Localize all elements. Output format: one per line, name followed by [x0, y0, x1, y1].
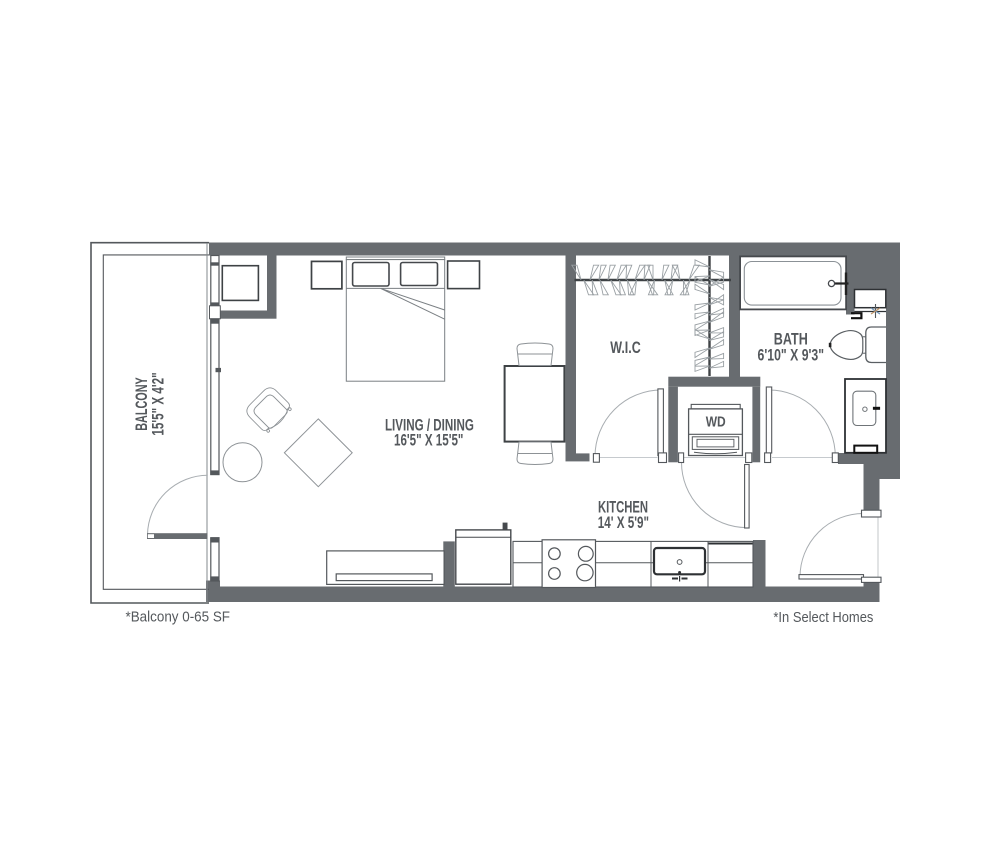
- svg-text:*Balcony 0-65 SF: *Balcony 0-65 SF: [126, 608, 231, 625]
- svg-text:14' X 5'9": 14' X 5'9": [598, 513, 649, 532]
- svg-text:W.I.C: W.I.C: [610, 338, 641, 357]
- svg-text:15'5" X 4'2": 15'5" X 4'2": [149, 372, 168, 435]
- svg-text:WD: WD: [706, 414, 726, 431]
- svg-text:16'5" X 15'5": 16'5" X 15'5": [394, 430, 463, 449]
- svg-text:6'10" X 9'3": 6'10" X 9'3": [758, 346, 825, 365]
- svg-text:*In Select Homes: *In Select Homes: [773, 609, 873, 626]
